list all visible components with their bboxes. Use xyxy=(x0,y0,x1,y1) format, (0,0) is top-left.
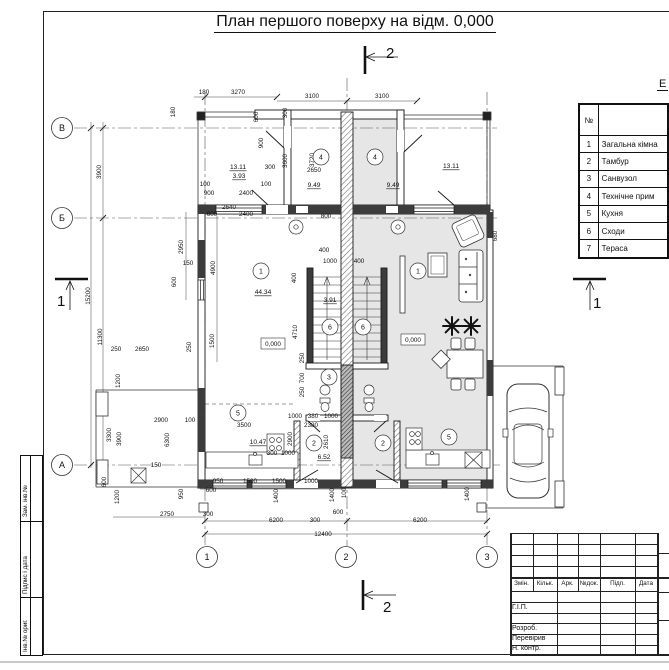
schedule-cell-no: 1 xyxy=(579,136,598,153)
schedule-cell-name: Сходи xyxy=(598,222,668,239)
schedule-col-name xyxy=(598,104,668,136)
schedule-cell-name: Санвузол xyxy=(598,170,668,187)
schedule-col-no: № xyxy=(579,104,598,136)
schedule-cell-name: Тамбур xyxy=(598,153,668,170)
schedule-cell-name: Тераса xyxy=(598,240,668,258)
schedule-row: 5Кухня xyxy=(579,205,668,222)
sheet-frame xyxy=(43,11,669,655)
schedule-cell-name: Загальна кімна xyxy=(598,136,668,153)
schedule-cell-no: 3 xyxy=(579,170,598,187)
schedule-cell-name: Кухня xyxy=(598,205,668,222)
schedule-cell-no: 6 xyxy=(579,222,598,239)
schedule-cell-no: 7 xyxy=(579,240,598,258)
schedule-cell-no: 5 xyxy=(579,205,598,222)
drawing-sheet: 2 2 1 1 ВБА123 1803270310031003002650100… xyxy=(0,0,669,670)
schedule-title: Е xyxy=(657,78,668,91)
page-edge xyxy=(0,661,669,663)
room-schedule-table: № 1Загальна кімна2Тамбур3Санвузол4Техніч… xyxy=(578,103,669,259)
schedule-row: 3Санвузол xyxy=(579,170,668,187)
schedule-cell-no: 2 xyxy=(579,153,598,170)
schedule-row: 2Тамбур xyxy=(579,153,668,170)
schedule-row: 6Сходи xyxy=(579,222,668,239)
schedule-row: 4Технічне прим xyxy=(579,188,668,205)
schedule-cell-no: 4 xyxy=(579,188,598,205)
drawing-title: План першого поверху на відм. 0,000 xyxy=(214,13,496,33)
schedule-row: 1Загальна кімна xyxy=(579,136,668,153)
schedule-row: 7Тераса xyxy=(579,240,668,258)
schedule-cell-name: Технічне прим xyxy=(598,188,668,205)
